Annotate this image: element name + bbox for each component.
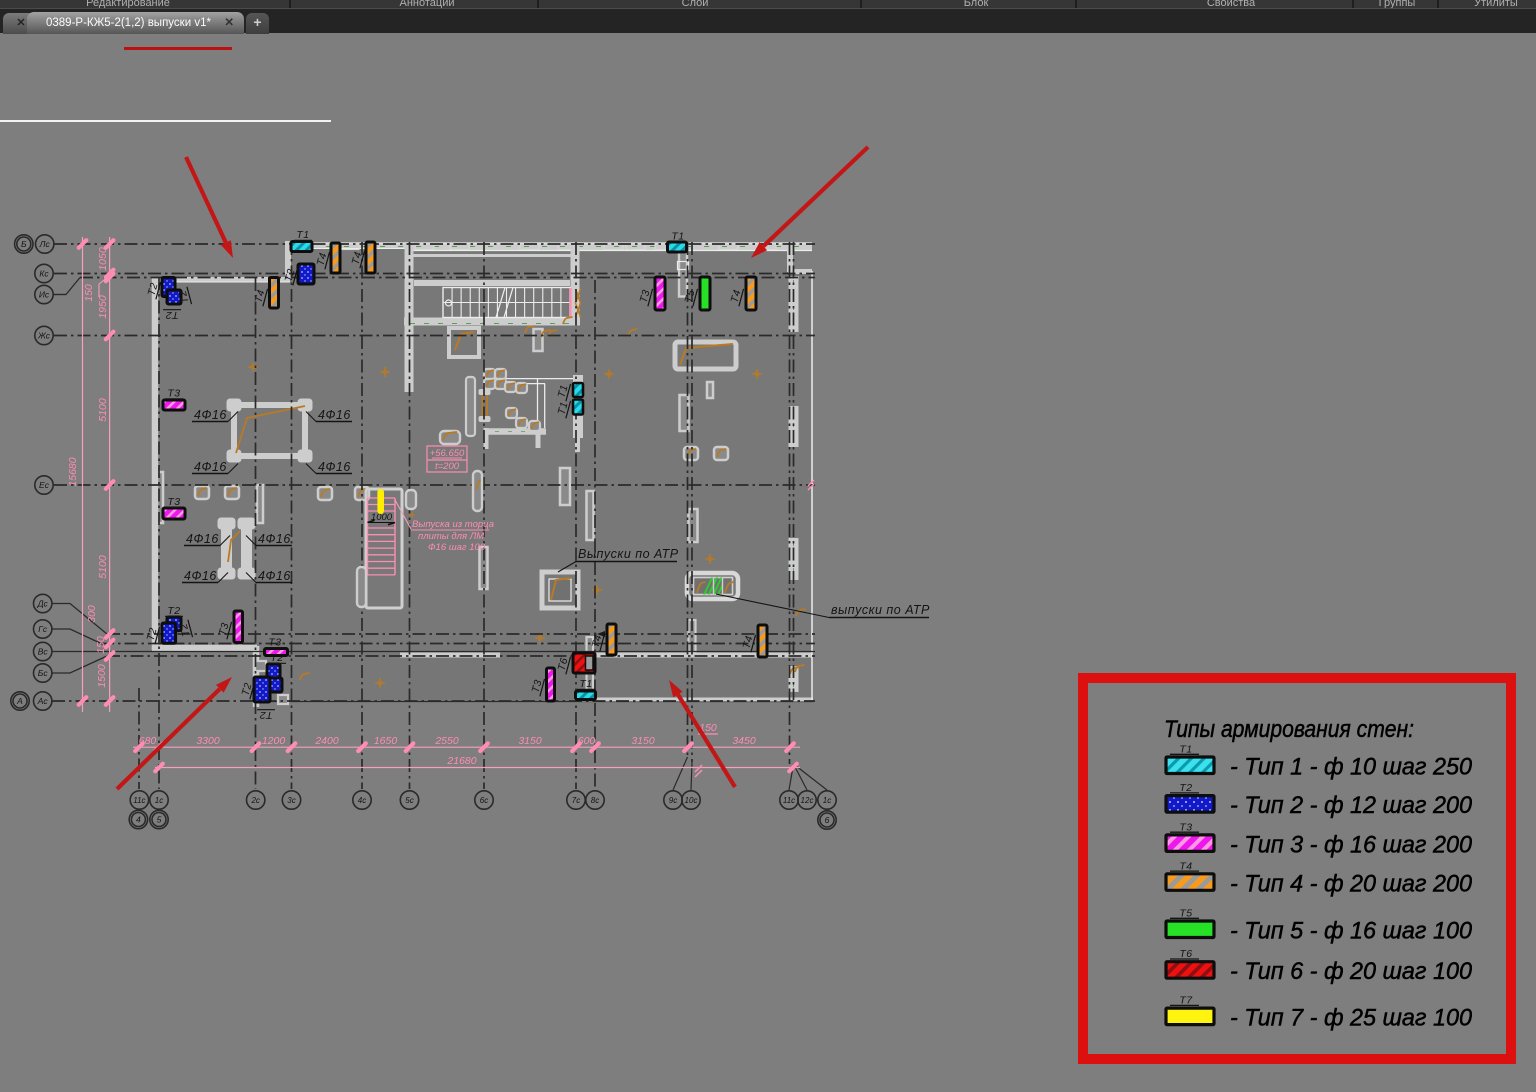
svg-text:Т2: Т2 bbox=[270, 652, 283, 664]
svg-text:3150: 3150 bbox=[518, 735, 542, 747]
svg-text:Кс: Кс bbox=[39, 269, 49, 279]
svg-text:- Тип 7 - ф 25 шаг 100: - Тип 7 - ф 25 шаг 100 bbox=[1230, 1005, 1473, 1032]
svg-text:3с: 3с bbox=[287, 796, 295, 805]
svg-text:t=200: t=200 bbox=[435, 461, 460, 472]
svg-text:8с: 8с bbox=[591, 796, 599, 805]
svg-text:- Тип 6 - ф 20 шаг 100: - Тип 6 - ф 20 шаг 100 bbox=[1230, 958, 1473, 985]
svg-text:- Тип 2 - ф 12 шаг 200: - Тип 2 - ф 12 шаг 200 bbox=[1230, 792, 1473, 819]
svg-text:Ас: Ас bbox=[37, 696, 49, 706]
svg-text:Типы армирования стен:: Типы армирования стен: bbox=[1164, 716, 1414, 743]
svg-text:- Тип 5 - ф 16 шаг 100: - Тип 5 - ф 16 шаг 100 bbox=[1230, 918, 1473, 945]
svg-text:4Ф16: 4Ф16 bbox=[194, 460, 227, 474]
svg-text:Бс: Бс bbox=[38, 668, 49, 678]
svg-text:11с: 11с bbox=[133, 796, 145, 805]
svg-text:+56.650: +56.650 bbox=[430, 448, 465, 459]
svg-text:1650: 1650 bbox=[374, 735, 398, 747]
svg-text:6: 6 bbox=[825, 815, 830, 825]
svg-text:4Ф16: 4Ф16 bbox=[318, 460, 351, 474]
svg-text:плиты для ЛМ: плиты для ЛМ bbox=[418, 531, 484, 542]
svg-text:Б: Б bbox=[21, 239, 27, 249]
svg-text:Т2: Т2 bbox=[167, 605, 180, 617]
svg-text:3450: 3450 bbox=[732, 735, 756, 747]
svg-text:5100: 5100 bbox=[97, 555, 109, 579]
svg-text:5100: 5100 bbox=[97, 398, 109, 422]
svg-text:- Тип 4 - ф 20 шаг 200: - Тип 4 - ф 20 шаг 200 bbox=[1230, 870, 1473, 897]
svg-text:Т1: Т1 bbox=[671, 231, 684, 243]
svg-text:Т3: Т3 bbox=[167, 496, 180, 508]
svg-text:Выпуски по АТР: Выпуски по АТР bbox=[578, 547, 679, 561]
svg-text:5с: 5с bbox=[405, 796, 413, 805]
svg-text:- Тип 3 - ф 16 шаг 200: - Тип 3 - ф 16 шаг 200 bbox=[1230, 831, 1473, 858]
svg-text:Т2: Т2 bbox=[259, 709, 272, 721]
svg-text:Т3: Т3 bbox=[268, 637, 281, 649]
svg-text:2550: 2550 bbox=[434, 735, 459, 747]
svg-text:600: 600 bbox=[578, 735, 596, 747]
svg-text:15680: 15680 bbox=[67, 457, 79, 486]
svg-text:1с: 1с bbox=[155, 796, 163, 805]
svg-text:150: 150 bbox=[83, 284, 95, 302]
svg-text:Т1: Т1 bbox=[296, 229, 309, 241]
svg-text:11с: 11с bbox=[783, 796, 795, 805]
svg-text:3150: 3150 bbox=[631, 735, 655, 747]
svg-text:1500: 1500 bbox=[96, 664, 108, 688]
svg-text:1200: 1200 bbox=[262, 735, 286, 747]
svg-text:Вс: Вс bbox=[38, 647, 49, 657]
svg-text:21680: 21680 bbox=[446, 755, 476, 767]
svg-text:Ис: Ис bbox=[39, 290, 50, 300]
svg-text:Выпуска из торца: Выпуска из торца bbox=[412, 519, 494, 530]
svg-text:А: А bbox=[16, 696, 23, 706]
svg-text:4с: 4с bbox=[358, 796, 366, 805]
svg-text:7с: 7с bbox=[572, 796, 580, 805]
svg-text:Ес: Ес bbox=[39, 480, 50, 490]
svg-text:1050: 1050 bbox=[97, 247, 109, 271]
svg-text:150: 150 bbox=[95, 636, 107, 654]
svg-text:4Ф16: 4Ф16 bbox=[194, 408, 227, 422]
svg-text:выпуски по АТР: выпуски по АТР bbox=[831, 603, 930, 617]
svg-text:Ф16 шаг 100: Ф16 шаг 100 bbox=[428, 542, 486, 553]
svg-text:4Ф16: 4Ф16 bbox=[258, 532, 291, 546]
svg-text:2400: 2400 bbox=[314, 735, 339, 747]
svg-text:300: 300 bbox=[86, 605, 98, 623]
svg-text:5: 5 bbox=[157, 815, 162, 825]
svg-text:4Ф16: 4Ф16 bbox=[184, 569, 217, 583]
svg-text:Т2: Т2 bbox=[165, 309, 178, 321]
svg-text:680: 680 bbox=[139, 735, 157, 747]
svg-text:4: 4 bbox=[136, 815, 141, 825]
svg-text:3300: 3300 bbox=[196, 735, 220, 747]
svg-text:Дс: Дс bbox=[37, 599, 49, 609]
svg-text:1950: 1950 bbox=[97, 295, 109, 319]
svg-text:Т1: Т1 bbox=[579, 678, 592, 690]
svg-text:Лс: Лс bbox=[39, 239, 51, 249]
svg-text:2с: 2с bbox=[250, 796, 259, 805]
svg-text:6с: 6с bbox=[480, 796, 488, 805]
svg-text:4Ф16: 4Ф16 bbox=[258, 569, 291, 583]
svg-text:10с: 10с bbox=[685, 796, 698, 805]
svg-text:- Тип 1 - ф 10 шаг 250: - Тип 1 - ф 10 шаг 250 bbox=[1230, 754, 1473, 781]
svg-text:1с: 1с bbox=[823, 796, 831, 805]
svg-text:4Ф16: 4Ф16 bbox=[318, 408, 351, 422]
svg-text:Гс: Гс bbox=[38, 624, 48, 634]
svg-text:Т3: Т3 bbox=[167, 388, 180, 400]
svg-text:9с: 9с bbox=[669, 796, 677, 805]
svg-text:Жс: Жс bbox=[37, 331, 51, 341]
svg-text:4Ф16: 4Ф16 bbox=[186, 532, 219, 546]
svg-text:12с: 12с bbox=[801, 796, 814, 805]
